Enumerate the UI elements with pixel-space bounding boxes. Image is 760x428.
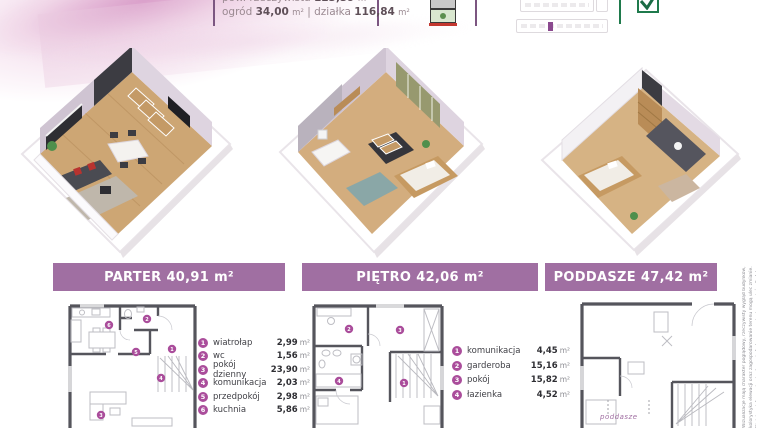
room-name: garderoba [467, 361, 511, 371]
room-area: 4,52 [537, 390, 558, 400]
room-name: łazienka [467, 390, 502, 400]
render-poddasze-3d [538, 66, 744, 258]
inner-walls [70, 306, 158, 354]
area-real-unit: m² [358, 0, 370, 4]
legend-item: 6kuchnia5,86m² [198, 404, 310, 418]
garden-plot-line: ogród 34,00 m² | działka 116,84 m² [222, 6, 410, 18]
badge-num: 3 [398, 328, 402, 334]
floor-name: PARTER [104, 270, 161, 285]
banner-pietro: PIĘTRO 42,06 m² [302, 263, 538, 291]
floor-scale-widget-row2 [516, 19, 608, 33]
door-arcs [336, 334, 380, 404]
legend-pietro: 1komunikacja4,45m² 2garderoba15,16m² 3po… [452, 344, 570, 402]
scale-ticks [521, 24, 603, 28]
banner-poddasze: PODDASZE 47,42 m² [545, 263, 717, 291]
room-area: 5,86 [277, 405, 298, 415]
room-number-badge: 1 [452, 346, 462, 356]
floor-area: 47,42 [641, 270, 684, 285]
plant [630, 212, 638, 220]
legend-item: 1wiatrołap2,99m² [198, 336, 310, 350]
header-divider [213, 0, 215, 26]
room-unit: m² [560, 390, 570, 399]
quality-check-icon [637, 0, 659, 13]
door-arcs [620, 304, 714, 388]
room-number-badge: 4 [198, 378, 208, 388]
room-area: 2,03 [277, 378, 298, 388]
plan-poddasze-2d: poddasze [576, 296, 740, 428]
floor-unit: m² [464, 270, 484, 285]
room-area: 15,16 [531, 361, 558, 371]
legend-item: 3pokój15,82m² [452, 373, 570, 388]
room-area: 15,82 [531, 375, 558, 385]
room-area: 2,99 [277, 338, 298, 348]
room-unit: m² [560, 361, 570, 370]
plot-label: działka [314, 6, 351, 18]
garden-unit: m² [292, 8, 304, 18]
poddasze-plan-label: poddasze [599, 413, 638, 421]
badge-num: 6 [107, 323, 111, 329]
room-area: 23,90 [271, 365, 298, 375]
plot-value: 116,84 [354, 6, 395, 18]
area-real-value: 123,39 [314, 0, 355, 4]
room-name: kuchnia [213, 405, 246, 415]
room-number-badge: 2 [198, 351, 208, 361]
separator: | [307, 6, 311, 18]
legend-item: 2garderoba15,16m² [452, 359, 570, 374]
render-parter-3d [16, 48, 238, 262]
room-number-badge: 1 [198, 338, 208, 348]
scale-info-box [596, 0, 608, 12]
render-pietro-3d [276, 48, 488, 262]
building-selected-floor [430, 9, 456, 23]
badge-num: 4 [337, 379, 341, 385]
plan-parter-2d: 1 2 3 4 5 6 [62, 296, 204, 428]
floor-scale-widget-row1 [520, 0, 594, 12]
floor-unit: m² [214, 270, 234, 285]
furniture-2d [586, 312, 672, 424]
room-name: komunikacja [467, 346, 520, 356]
vertical-disclaimer: Wizualizacje mają charakter poglądowy, r… [742, 252, 756, 428]
plot-unit: m² [398, 8, 410, 18]
stairs-2d [396, 354, 438, 398]
outer-walls [582, 304, 734, 428]
badge-num: 4 [159, 376, 163, 382]
room-unit: m² [560, 375, 570, 384]
legend-item: 4komunikacja2,03m² [198, 377, 310, 391]
room-number-badge: 3 [452, 375, 462, 385]
header-divider-green [619, 0, 621, 24]
badge-num: 2 [347, 327, 351, 333]
stairs-2d [676, 384, 724, 426]
building-base-line [429, 23, 457, 26]
badge-num: 1 [170, 347, 174, 353]
window-lines [376, 305, 443, 390]
check-glyph [639, 0, 657, 10]
badge-num: 3 [99, 413, 103, 419]
room-area: 2,98 [277, 392, 298, 402]
garden-value: 34,00 [256, 6, 289, 18]
room-name: wiatrołap [213, 338, 252, 348]
plan-pietro-2d: 1 2 3 4 [306, 296, 450, 428]
legend-item: 1komunikacja4,45m² [452, 344, 570, 359]
floor-marker-dot [440, 13, 446, 19]
badge-num: 1 [402, 381, 406, 387]
room-name: komunikacja [213, 378, 266, 388]
legend-item: 3pokój dzienny23,90m² [198, 363, 310, 377]
building-upper-floor [430, 0, 456, 9]
area-real-label: pow. rzeczywista [222, 0, 311, 4]
room-name: pokój [467, 375, 490, 385]
furniture-2d [71, 307, 172, 426]
brochure-page: pow. rzeczywista 123,39 m² ogród 34,00 m… [0, 0, 760, 428]
floor-name: PODDASZE [554, 270, 636, 285]
room-number-badge: 6 [198, 405, 208, 415]
room-number-badge: 3 [198, 365, 208, 375]
knee-wall-dashes [608, 400, 649, 414]
room-name: przedpokój [213, 392, 260, 402]
legend-item: 4łazienka4,52m² [452, 388, 570, 403]
floor-area: 42,06 [416, 270, 459, 285]
coffee-table [100, 186, 111, 194]
building-cross-section-icon [429, 0, 457, 26]
floor-name: PIĘTRO [356, 270, 411, 285]
furniture-2d [316, 308, 440, 424]
badge-num: 2 [145, 317, 149, 323]
stairs-2d [158, 356, 193, 392]
banner-parter: PARTER 40,91 m² [53, 263, 285, 291]
badge-num: 5 [134, 350, 138, 356]
header-divider [475, 0, 477, 26]
room-number-badge: 4 [452, 390, 462, 400]
scale-ticks [525, 3, 589, 7]
scale-marker [548, 22, 553, 31]
legend-parter: 1wiatrołap2,99m² 2wc1,56m² 3pokój dzienn… [198, 336, 310, 417]
room-name: pokój dzienny [213, 360, 266, 380]
room-number-badge: 2 [452, 361, 462, 371]
room-area: 4,45 [537, 346, 558, 356]
floor-unit: m² [689, 270, 709, 285]
room-area: 1,56 [277, 351, 298, 361]
room-unit: m² [560, 346, 570, 355]
garden-label: ogród [222, 6, 252, 18]
plant [422, 140, 430, 148]
washer [318, 130, 327, 139]
plant [47, 141, 57, 151]
floor-area: 40,91 [166, 270, 209, 285]
sink [674, 142, 682, 150]
legend-item: 5przedpokój2,98m² [198, 390, 310, 404]
area-real-line: pow. rzeczywista 123,39 m² [222, 0, 370, 4]
room-number-badge: 5 [198, 392, 208, 402]
